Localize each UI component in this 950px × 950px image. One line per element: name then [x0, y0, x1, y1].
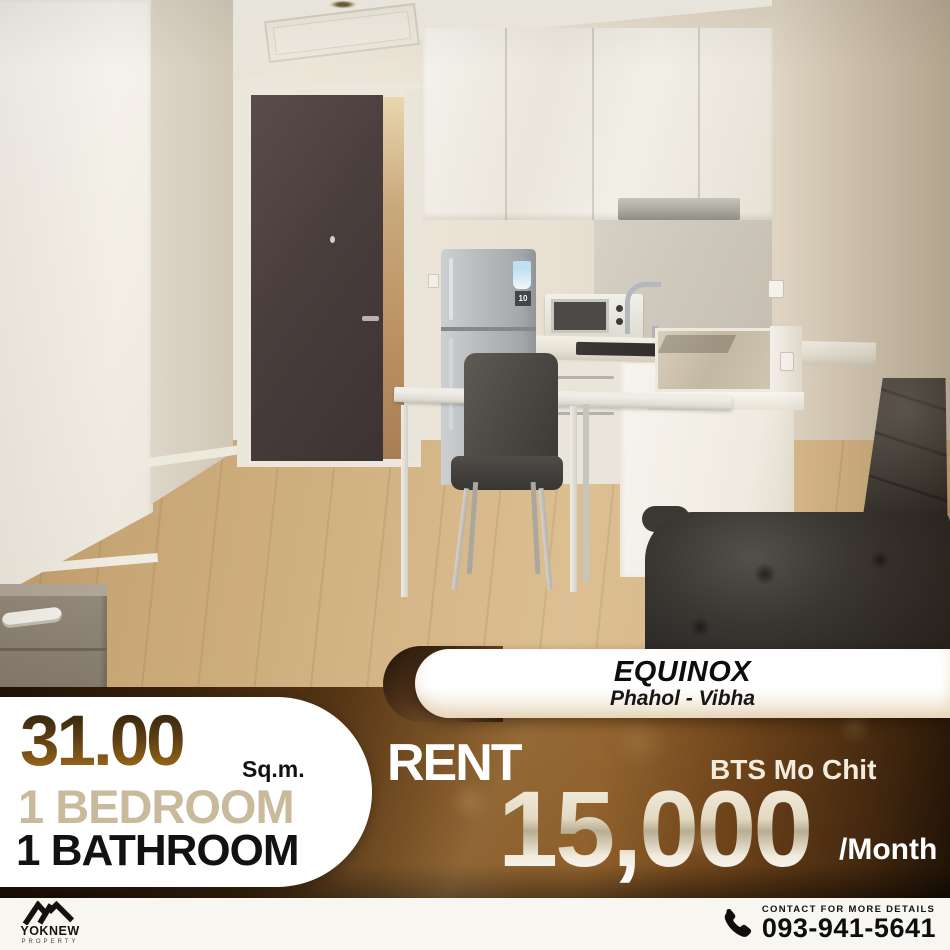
kitchen-upper-cabinets	[423, 28, 773, 220]
range-hood	[618, 198, 740, 220]
project-location: Phahol - Vibha	[610, 687, 755, 710]
yoknew-logo: YOKNEW PROPERTY	[12, 901, 88, 946]
ceiling-vent-panel	[273, 11, 411, 55]
wall-column	[151, 0, 233, 520]
area-value: 31.00	[20, 706, 183, 777]
door-handle	[362, 316, 379, 321]
brand-subtitle: PROPERTY	[12, 938, 88, 946]
table-leg	[570, 406, 577, 592]
energy-sticker	[513, 261, 531, 289]
fridge-handle	[449, 338, 453, 430]
sideboard	[0, 584, 107, 690]
light-switch	[768, 280, 784, 298]
project-ribbon: EQUINOX Phahol - Vibha	[415, 649, 950, 718]
light-switch	[780, 352, 794, 371]
fridge-handle	[449, 258, 453, 320]
table-leg	[583, 404, 589, 582]
apartment-photo: 10	[0, 0, 950, 690]
wall-mirror-panel	[655, 328, 773, 392]
cabinet-seam	[698, 28, 700, 220]
brand-name: YOKNEW	[12, 925, 88, 938]
microwave-window	[551, 299, 609, 333]
contact-text: CONTACT FOR MORE DETAILS 093-941-5641	[762, 904, 936, 942]
bathroom-label: 1 BATHROOM	[16, 829, 299, 873]
microwave-dial	[616, 318, 623, 325]
phone-icon	[721, 907, 753, 939]
contact-block: CONTACT FOR MORE DETAILS 093-941-5641	[721, 904, 936, 942]
fridge-door-divider	[441, 327, 536, 331]
recessed-light	[328, 0, 358, 9]
door-peephole	[330, 236, 335, 243]
bedroom-label: 1 BEDROOM	[18, 783, 294, 830]
footer-bar: YOKNEW PROPERTY CONTACT FOR MORE DETAILS…	[0, 898, 950, 950]
project-name: EQUINOX	[614, 657, 751, 687]
sideboard-top	[0, 584, 107, 596]
light-switch	[428, 274, 439, 288]
yoknew-logo-icon	[22, 901, 78, 925]
cabinet-seam	[592, 28, 594, 220]
area-unit: Sq.m.	[242, 756, 305, 783]
entrance-door	[251, 95, 383, 461]
price-value: 15,000	[498, 775, 810, 883]
microwave-dial	[616, 305, 623, 312]
listing-card: 10	[0, 0, 950, 950]
sideboard-shelf	[0, 648, 107, 651]
table-leg	[401, 405, 408, 597]
dining-chair	[464, 353, 558, 463]
price-period: /Month	[839, 835, 937, 865]
dining-chair-seat	[451, 456, 563, 490]
energy-sticker-label: 10	[515, 291, 531, 306]
phone-number: 093-941-5641	[762, 915, 936, 942]
remote-control	[1, 606, 62, 628]
cabinet-seam	[505, 28, 507, 220]
mirror-reflection	[658, 335, 736, 353]
